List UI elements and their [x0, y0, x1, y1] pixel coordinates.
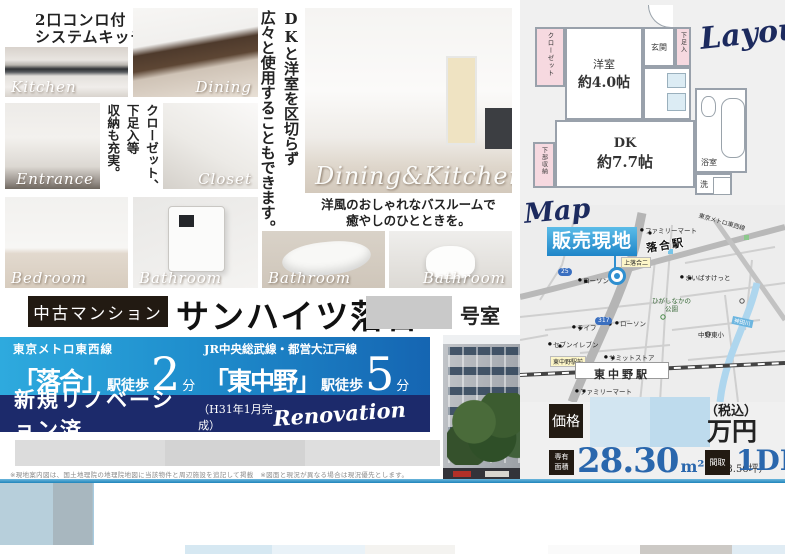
map-label-lawson2: ローソン	[615, 318, 646, 328]
area-label-box: 専有 面積	[549, 450, 574, 475]
redacted-block	[305, 440, 440, 466]
mosaic-block	[548, 545, 640, 554]
map-label-kamiochiai: 上落合二	[621, 257, 651, 268]
madori-label: 間取	[710, 457, 726, 468]
shop-sign-white	[485, 471, 509, 477]
redacted-strip	[15, 440, 440, 466]
photo-bathroom-panel: Bathroom	[133, 197, 258, 288]
plan-room-bath: 浴室	[695, 88, 747, 173]
mosaic-block	[185, 545, 272, 554]
plan-kitchen-strip	[643, 67, 691, 120]
plan-room-understorage: 下部収納	[533, 142, 555, 188]
map-label-life: ライフ	[572, 322, 596, 332]
access-station2-minutes: 5	[365, 355, 394, 394]
plan-room-bath-label: 浴室	[701, 157, 717, 168]
disclaimer-text: ※現地案内図は、国土地理院の地理院地図に当該物件と周辺施設を追記して掲載 ※図面…	[10, 469, 408, 479]
room-suffix: 号室	[460, 300, 500, 329]
plan-room-closet-label: クローゼット	[545, 32, 555, 77]
madori-label-box: 間取	[705, 450, 730, 475]
redacted-block	[15, 440, 165, 466]
map-label-seven-eleven: セブンイレブン	[548, 339, 598, 349]
route-shield-25: 25	[558, 268, 572, 276]
property-category: 中古マンション	[33, 300, 163, 324]
access-station2-name: 「東中野」	[204, 362, 319, 398]
renovation-band: 新規リノベーション済 （H31年1月完成） Renovation	[0, 395, 430, 432]
price-label: 価格	[552, 411, 580, 431]
photo-dining-label: Dining	[195, 78, 252, 96]
renovation-script: Renovation	[272, 396, 416, 431]
plan-washer-icon	[713, 177, 731, 195]
photo-entrance: Entrance	[5, 103, 100, 189]
entrance-door-arc	[648, 5, 673, 28]
photo-closet: Closet	[163, 103, 258, 189]
photo-dining-kitchen-label: Dining&Kitchen	[315, 162, 512, 190]
map-label-higashinakano-station: 東中野駅	[594, 368, 650, 381]
plan-room-western-label: 洋室	[567, 56, 641, 72]
site-marker-dot	[614, 273, 620, 279]
redacted-block	[165, 440, 305, 466]
area-value: 28.30	[577, 441, 678, 481]
photo-entrance-label: Entrance	[16, 170, 94, 188]
photo-bathroom-tub-label: Bathroom	[268, 269, 351, 287]
storage-caption: クローゼット、 下足入等 収納も充実。	[101, 104, 161, 192]
map-heading: Map	[523, 193, 592, 230]
photo-bathroom-panel-label: Bathroom	[139, 269, 222, 287]
map-label-school: 中野東小	[698, 329, 724, 339]
photo-closet-label: Closet	[198, 170, 252, 188]
plan-stove-icon	[667, 93, 686, 111]
plan-room-shoebox-label: 下足入	[679, 32, 688, 53]
photo-kitchen-label: Kitchen	[11, 78, 77, 96]
mosaic-block	[640, 545, 732, 554]
plan-room-western-size: 約4.0帖	[567, 72, 641, 92]
mosaic-block	[272, 545, 365, 554]
plan-room-laundry-label: 洗	[700, 179, 708, 190]
site-map: 販売現地 落合駅 東京メトロ東西線 ファミリーマート 上落合二 ローソン まいば…	[520, 205, 785, 402]
map-label-family-mart2: ファミリーマート	[575, 386, 632, 396]
map-label-park: ひがしなかの 公園	[652, 298, 691, 314]
room-number-redacted	[366, 296, 452, 329]
plan-room-laundry: 洗	[695, 173, 732, 195]
renovation-note: （H31年1月完成）	[198, 401, 273, 433]
plan-room-closet: クローゼット	[535, 27, 565, 87]
plan-room-western: 洋室 約4.0帖	[565, 27, 643, 120]
photo-bathroom-toilet: Bathroom	[389, 231, 512, 288]
area-unit: m²	[680, 457, 704, 476]
mosaic-block	[365, 545, 455, 554]
plan-tub-icon	[721, 98, 745, 158]
photo-bathroom-toilet-label: Bathroom	[423, 269, 506, 287]
map-label-family-mart1: ファミリーマート	[640, 225, 697, 235]
plan-room-dk: DK 約7.7帖	[555, 120, 695, 188]
route-shield-317: 317	[595, 317, 612, 325]
plan-toilet-icon	[701, 96, 716, 117]
price-redacted	[590, 397, 710, 447]
site-label: 販売現地	[547, 227, 637, 256]
plan-sink-icon	[667, 73, 686, 88]
price-label-box: 価格	[549, 404, 583, 438]
real-estate-flyer: 2口コンロ付 システムキッチン Kitchen Dining Entrance …	[0, 0, 785, 554]
map-label-summit-store: サミットストア	[604, 352, 654, 362]
dk-usage-caption: DKと洋室を区切らず 広々と使用することもできます。	[256, 10, 302, 238]
bottom-redacted-mosaic	[0, 483, 785, 545]
higashinakano-station-box: 東中野駅	[575, 362, 669, 379]
photo-bedroom: Bedroom	[5, 197, 128, 288]
photo-kitchen: Kitchen	[5, 47, 128, 97]
bathroom-caption: 洋風のおしゃれなバスルームで 癒やしのひとときを。	[305, 197, 512, 228]
photo-bathroom-tub: Bathroom	[262, 231, 385, 288]
access-station2: JR中央総武線・都営大江戸線 「東中野」 駅徒歩 5 分	[204, 341, 409, 398]
photo-dining: Dining	[133, 8, 258, 97]
area-label: 専有 面積	[555, 453, 569, 473]
access-station2-unit: 分	[396, 375, 409, 394]
plan-room-dk-size: 約7.7帖	[557, 151, 693, 172]
price-redacted-block	[590, 397, 650, 447]
plan-room-understorage-label: 下部収納	[540, 147, 549, 175]
mosaic-block	[732, 545, 785, 554]
property-category-box: 中古マンション	[28, 296, 168, 327]
madori-value: 1DK	[736, 444, 785, 477]
plan-room-shoebox: 下足入	[675, 27, 691, 67]
access-station2-walk: 駅徒歩	[321, 375, 363, 395]
plan-room-entrance: 玄関	[643, 27, 675, 67]
price-unit-group: （税込） 万円	[695, 400, 757, 444]
photo-bedroom-label: Bedroom	[11, 269, 87, 287]
plan-room-dk-label: DK	[557, 136, 693, 151]
plan-room-entrance-label: 玄関	[645, 42, 673, 53]
map-label-lawson1: ローソン	[578, 275, 609, 285]
photo-dining-kitchen: Dining&Kitchen	[305, 8, 512, 193]
renovation-title: 新規リノベーション済	[14, 384, 192, 444]
shop-sign-red	[453, 471, 471, 477]
mosaic-block	[0, 483, 53, 545]
site-marker	[608, 267, 626, 285]
map-label-my-basket: まいばすけっと	[680, 272, 730, 282]
